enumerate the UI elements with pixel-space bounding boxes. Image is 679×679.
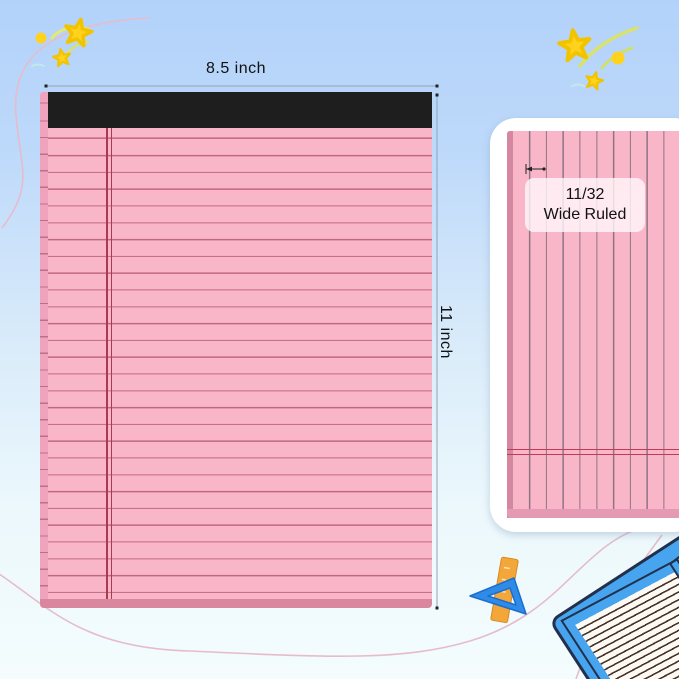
product-image-canvas: 8.5 inch 11 inch 11/32	[0, 0, 679, 679]
margin-line	[111, 128, 112, 599]
detail-bottom-edge	[507, 509, 679, 518]
ruling-detail-card: 11/32 Wide Ruled	[490, 118, 679, 532]
ruling-name-text: Wide Ruled	[544, 205, 627, 225]
notepad-bottom-edge	[40, 599, 432, 608]
width-dimension-line	[40, 79, 440, 93]
star-icon	[542, 8, 647, 103]
line-spacing-arrow-icon	[523, 163, 549, 175]
margin-line	[106, 128, 108, 599]
notepad-binding	[48, 92, 432, 128]
notepad-front-view	[40, 92, 432, 608]
width-dimension-label: 8.5 inch	[40, 60, 432, 78]
detail-page-edge	[507, 131, 513, 518]
ruling-label: 11/32 Wide Ruled	[525, 178, 645, 232]
detail-margin-line	[507, 454, 679, 455]
notepad-page-edge	[40, 92, 48, 608]
detail-margin-line	[507, 449, 679, 450]
detail-paper: 11/32 Wide Ruled	[507, 131, 679, 518]
height-dimension-label: 11 inch	[436, 305, 454, 359]
ruling-fraction-text: 11/32	[566, 185, 605, 205]
ruler-icon	[458, 548, 548, 638]
